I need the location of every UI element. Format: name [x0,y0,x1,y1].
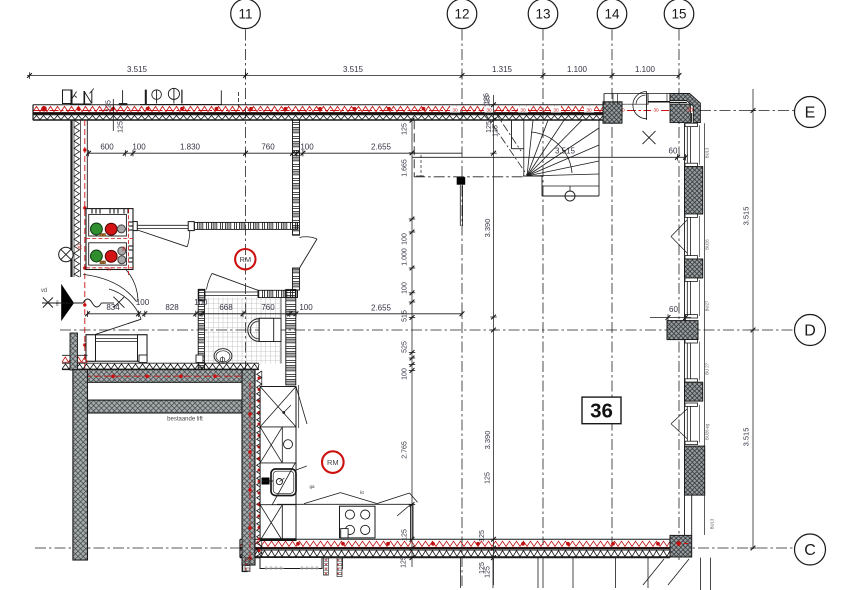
svg-text:100: 100 [402,233,409,245]
svg-text:125: 125 [479,530,486,542]
svg-text:30: 30 [687,108,693,114]
svg-text:30: 30 [106,266,112,271]
svg-text:125: 125 [402,529,409,541]
svg-text:BU26: BU26 [705,239,710,250]
svg-text:D: D [804,323,816,340]
svg-text:125: 125 [485,472,492,484]
svg-text:100: 100 [132,143,146,152]
svg-text:100: 100 [194,298,208,307]
svg-text:1.100: 1.100 [635,65,656,74]
svg-text:bestaande lift: bestaande lift [167,417,203,423]
svg-text:60: 60 [669,147,678,156]
svg-text:30: 30 [452,107,458,113]
svg-text:3.515: 3.515 [343,65,364,74]
svg-text:125: 125 [493,125,500,137]
svg-text:525: 525 [402,341,409,353]
svg-text:30: 30 [553,107,559,113]
svg-text:1.000: 1.000 [402,248,409,266]
svg-text:BU27: BU27 [705,300,710,311]
svg-text:515: 515 [402,310,409,322]
svg-text:3.390: 3.390 [483,431,492,450]
svg-text:BU13: BU13 [710,518,715,529]
svg-text:2.765: 2.765 [402,441,409,459]
svg-text:11: 11 [238,7,252,22]
svg-text:125: 125 [106,100,113,112]
svg-text:RM: RM [327,458,339,467]
svg-text:3.515: 3.515 [127,65,148,74]
svg-text:3.390: 3.390 [483,219,492,238]
svg-text:ga: ga [309,484,315,489]
svg-text:C: C [804,542,816,559]
svg-text:30: 30 [520,107,526,113]
svg-text:12: 12 [454,7,469,22]
svg-text:30: 30 [586,107,592,113]
svg-text:kt: kt [360,490,364,495]
svg-text:2.655: 2.655 [371,304,392,313]
svg-text:828: 828 [165,303,179,312]
svg-text:1.315: 1.315 [492,65,513,74]
svg-text:RM: RM [239,255,251,264]
svg-text:760: 760 [261,143,275,152]
svg-text:668: 668 [219,303,233,312]
svg-text:E: E [805,105,816,122]
svg-text:125: 125 [486,121,493,133]
svg-text:125: 125 [479,562,486,574]
svg-text:30: 30 [653,107,659,113]
svg-text:15: 15 [671,7,686,22]
svg-text:60: 60 [669,305,678,314]
svg-text:30: 30 [486,107,492,113]
svg-text:BU 27: BU 27 [705,362,710,374]
svg-text:125: 125 [402,123,409,135]
svg-text:1.665: 1.665 [402,159,409,177]
svg-text:760: 760 [261,303,275,312]
svg-text:3.515: 3.515 [555,147,576,156]
svg-text:14: 14 [604,7,620,22]
svg-text:3.515: 3.515 [742,207,751,226]
svg-text:125: 125 [118,121,125,133]
svg-text:100: 100 [402,282,409,294]
svg-text:2.655: 2.655 [371,143,392,152]
svg-text:100: 100 [299,303,313,312]
svg-text:36: 36 [590,400,613,423]
svg-text:BU26 eg: BU26 eg [705,423,710,440]
svg-text:600: 600 [100,143,114,152]
svg-text:vd: vd [41,288,47,294]
svg-text:3.515: 3.515 [742,428,751,447]
svg-text:100: 100 [300,143,314,152]
svg-text:13: 13 [535,7,550,22]
svg-text:30: 30 [122,246,127,252]
svg-text:125: 125 [401,556,408,568]
svg-text:30: 30 [78,244,84,250]
svg-text:1.830: 1.830 [180,143,201,152]
svg-text:1.100: 1.100 [567,65,588,74]
svg-text:BU13: BU13 [705,147,710,158]
svg-text:100: 100 [402,368,409,380]
svg-text:125: 125 [484,93,491,105]
svg-text:RM: RM [56,300,60,305]
